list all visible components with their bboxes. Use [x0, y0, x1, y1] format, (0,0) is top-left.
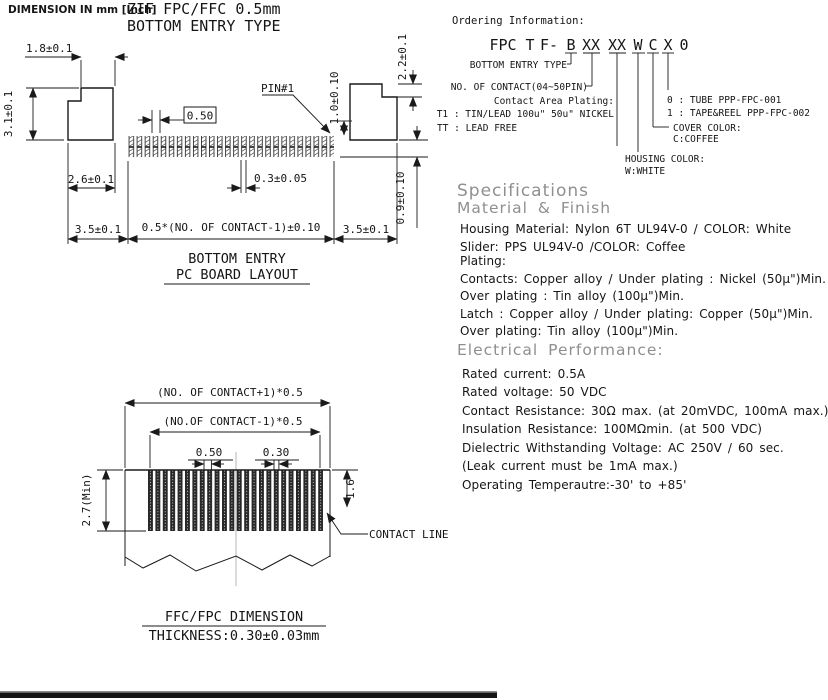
electrical-performance-lines: Rated current: 0.5A Rated voltage: 50 VD… [462, 367, 828, 492]
dim-ffc-pitch: 0.50 [188, 446, 233, 470]
svg-text:(NO.OF CONTACT-1)*0.5: (NO.OF CONTACT-1)*0.5 [163, 415, 302, 428]
ordering-heading: Ordering Information: [452, 15, 585, 27]
drawing-title-line1: ZIF FPC/FFC 0.5mm [127, 0, 281, 18]
svg-text:3.5±0.1: 3.5±0.1 [75, 223, 121, 236]
ffc-dimension-drawing: (NO. OF CONTACT+1)*0.5 (NO.OF CONTACT-1)… [80, 386, 448, 644]
svg-text:2.6±0.1: 2.6±0.1 [68, 173, 114, 186]
dim-pad-width: 0.3±0.05 [227, 160, 307, 193]
label-cover-color: COVER COLOR: [673, 123, 742, 134]
material-finish-lines: Housing Material: Nylon 6T UL94V-0 / COL… [460, 222, 826, 338]
label-no-of-contact: NO. OF CONTACT(04~50PIN) [451, 82, 588, 93]
datasheet-drawing: DIMENSION IN mm [Inch] ZIF FPC/FFC 0.5mm… [0, 0, 828, 700]
svg-text:B: B [566, 36, 575, 54]
svg-text:0: 0 [679, 36, 688, 54]
label-bottom-entry-type: BOTTOM ENTRY TYPE [470, 60, 568, 71]
svg-text:F-: F- [540, 36, 558, 54]
specifications-heading: Specifications [457, 181, 589, 201]
dim-2-2: 2.2±0.1 [384, 34, 422, 111]
pcb-caption-line1: BOTTOM ENTRY [188, 251, 286, 267]
dim-ffc-pad: 0.30 [255, 446, 299, 470]
dim-pitch-boxed: 0.50 [138, 107, 216, 133]
svg-text:1.8±0.1: 1.8±0.1 [26, 42, 72, 55]
svg-text:C: C [648, 36, 657, 54]
ffc-caption-line2: THICKNESS:0.30±0.03mm [149, 628, 320, 644]
right-housing-block [350, 84, 397, 140]
svg-text:Housing Material: Nylon 6T UL9: Housing Material: Nylon 6T UL94V-0 / COL… [460, 222, 791, 236]
label-contact-area-plating: Contact Area Plating: [494, 96, 614, 107]
svg-text:XX: XX [608, 36, 626, 54]
dim-2-7: 2.7(Min) [80, 470, 146, 531]
svg-text:0.9±0.10: 0.9±0.10 [394, 172, 407, 225]
dim-1-0: 1.0±0.10 [328, 72, 352, 135]
svg-text:Plating:: Plating: [460, 254, 506, 268]
svg-text:Rated current: 0.5A: Rated current: 0.5A [462, 367, 586, 381]
svg-text:3.1±0.1: 3.1±0.1 [2, 91, 15, 137]
svg-text:XX: XX [582, 36, 600, 54]
dim-1-8: 1.8±0.1 [25, 42, 128, 87]
label-pack-tube: 0 : TUBE PPP-FPC-001 [667, 95, 782, 106]
sheet-border-rule [0, 691, 497, 698]
pcb-caption-line2: PC BOARD LAYOUT [176, 267, 298, 283]
svg-text:W: W [633, 36, 643, 54]
material-finish-heading: Material & Finish [457, 199, 611, 217]
svg-text:0.3±0.05: 0.3±0.05 [254, 172, 307, 185]
svg-text:Contact Resistance: 30Ω max. (: Contact Resistance: 30Ω max. (at 20mVDC,… [462, 404, 828, 418]
part-number-code: FPC T F- B XX XX W C X 0 [489, 36, 688, 54]
svg-text:Over plating : Tin alloy (100: Over plating : Tin alloy (100μ")Min. [460, 289, 684, 303]
svg-text:Over plating: Tin alloy (100μ: Over plating: Tin alloy (100μ")Min. [460, 324, 678, 338]
svg-text:2.7(Min): 2.7(Min) [80, 474, 93, 527]
drawing-title-line2: BOTTOM ENTRY TYPE [127, 17, 281, 35]
svg-text:X: X [663, 36, 672, 54]
svg-text:(NO. OF CONTACT+1)*0.5: (NO. OF CONTACT+1)*0.5 [157, 386, 303, 399]
label-plating-tt: TT : LEAD FREE [437, 123, 517, 134]
label-cover-color-value: C:COFFEE [673, 134, 719, 145]
pin1-callout: PIN#1 [261, 82, 330, 133]
contact-line-callout: CONTACT LINE [327, 513, 448, 541]
svg-text:Slider: PPS UL94V-0 /COLOR: Co: Slider: PPS UL94V-0 /COLOR: Coffee [460, 240, 686, 254]
svg-text:FPC: FPC [489, 36, 516, 54]
svg-text:Rated voltage: 50 VDC: Rated voltage: 50 VDC [462, 385, 607, 399]
svg-text:0.50: 0.50 [196, 446, 223, 459]
break-line [125, 555, 330, 571]
dim-1-6: 1.6 [332, 470, 358, 507]
pcb-layout-drawing: 1.8±0.1 3.1±0.1 2.6±0.1 3.5±0.1 [2, 34, 428, 284]
svg-text:Contacts: Copper alloy / Under: Contacts: Copper alloy / Under plating :… [460, 272, 826, 286]
dim-3-5-right: 3.5±0.1 [334, 143, 397, 244]
ffc-contact-strip [148, 470, 323, 531]
svg-text:Operating Temperautre:-30' to: Operating Temperautre:-30' to +85' [462, 478, 686, 492]
svg-text:1.0±0.10: 1.0±0.10 [328, 72, 341, 125]
label-housing-color-value: W:WHITE [625, 166, 665, 177]
svg-text:T: T [525, 36, 534, 54]
svg-text:1.6: 1.6 [344, 479, 357, 499]
svg-text:2.2±0.1: 2.2±0.1 [396, 34, 409, 80]
contact-pad-row [128, 136, 334, 157]
datasheet-page: DIMENSION IN mm [Inch] ZIF FPC/FFC 0.5mm… [0, 0, 828, 700]
specifications-section: Specifications Material & Finish Housing… [457, 181, 828, 492]
svg-text:Latch : Copper alloy / Under p: Latch : Copper alloy / Under plating: Co… [460, 307, 813, 321]
ordering-information: Ordering Information: FPC T F- B XX XX W… [437, 15, 810, 177]
svg-text:CONTACT LINE: CONTACT LINE [369, 528, 448, 541]
svg-text:0.50: 0.50 [187, 110, 214, 123]
svg-text:(Leak current must be 1mA max.: (Leak current must be 1mA max.) [462, 459, 678, 473]
svg-text:0.5*(NO. OF CONTACT-1)±0.10: 0.5*(NO. OF CONTACT-1)±0.10 [142, 221, 321, 234]
label-housing-color: HOUSING COLOR: [625, 154, 705, 165]
label-pack-reel: 1 : TAPE&REEL PPP-FPC-002 [667, 108, 810, 119]
label-plating-t1: T1 : TIN/LEAD 100u" 50u" NICKEL [437, 109, 615, 120]
left-housing-block [68, 88, 113, 140]
svg-text:Insulation Resistance: 100MΩmi: Insulation Resistance: 100MΩmin. (at 500… [462, 422, 762, 436]
ffc-caption-line1: FFC/FPC DIMENSION [165, 609, 303, 625]
svg-text:0.30: 0.30 [263, 446, 290, 459]
svg-text:PIN#1: PIN#1 [261, 82, 294, 95]
svg-text:3.5±0.1: 3.5±0.1 [343, 223, 389, 236]
svg-text:Dielectric Withstanding Voltag: Dielectric Withstanding Voltage: AC 250V… [462, 441, 784, 455]
electrical-performance-heading: Electrical Performance: [457, 341, 664, 359]
dim-0-9: 0.9±0.10 [340, 126, 428, 228]
